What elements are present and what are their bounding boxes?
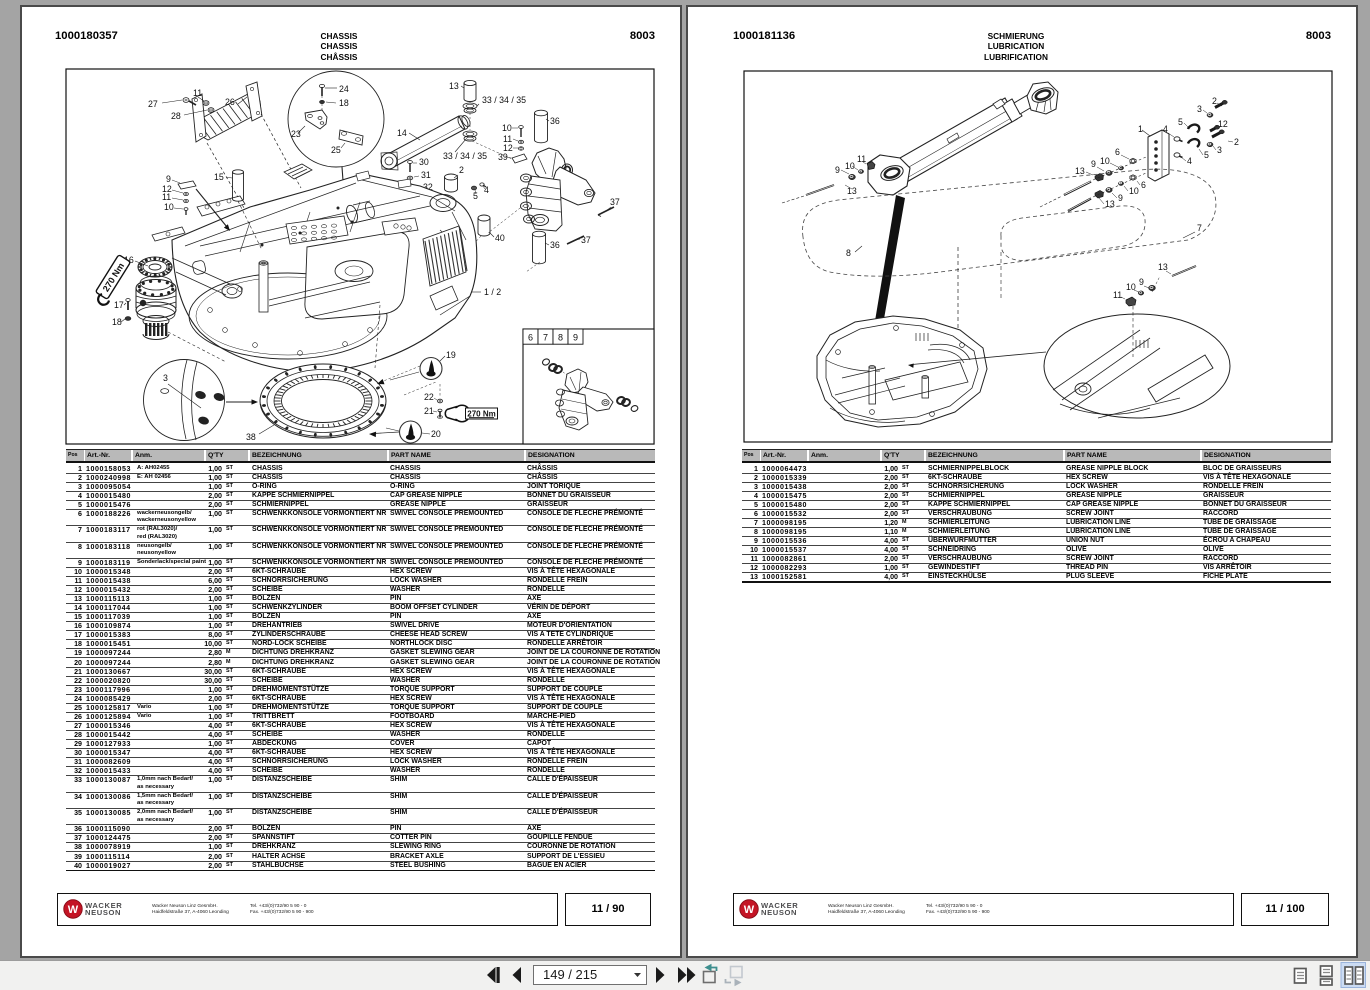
svg-text:6: 6 (1115, 147, 1120, 157)
svg-text:W: W (744, 904, 755, 916)
svg-text:13: 13 (1075, 166, 1085, 176)
svg-text:4: 4 (1187, 156, 1192, 166)
svg-text:3: 3 (1197, 104, 1202, 114)
svg-text:11: 11 (1113, 290, 1122, 300)
svg-text:3: 3 (1217, 145, 1222, 155)
svg-text:5: 5 (1178, 117, 1183, 127)
svg-text:6: 6 (1141, 180, 1146, 190)
svg-text:11: 11 (857, 154, 866, 164)
svg-text:9: 9 (835, 165, 840, 175)
svg-text:8: 8 (846, 248, 851, 258)
svg-text:13: 13 (847, 186, 857, 196)
svg-text:7: 7 (1197, 223, 1202, 233)
svg-text:2: 2 (1234, 137, 1239, 147)
svg-text:10: 10 (1126, 282, 1136, 292)
svg-text:10: 10 (1129, 186, 1139, 196)
svg-text:10: 10 (1100, 156, 1110, 166)
svg-text:9: 9 (1139, 277, 1144, 287)
svg-text:12: 12 (1218, 119, 1228, 129)
svg-text:9: 9 (1118, 193, 1123, 203)
svg-text:2: 2 (1212, 96, 1217, 106)
svg-text:9: 9 (1091, 159, 1096, 169)
svg-text:1: 1 (1138, 124, 1143, 134)
svg-text:5: 5 (1204, 150, 1209, 160)
svg-text:10: 10 (845, 161, 855, 171)
svg-text:13: 13 (1158, 262, 1168, 272)
svg-text:4: 4 (1163, 124, 1168, 134)
svg-text:W: W (68, 904, 79, 916)
